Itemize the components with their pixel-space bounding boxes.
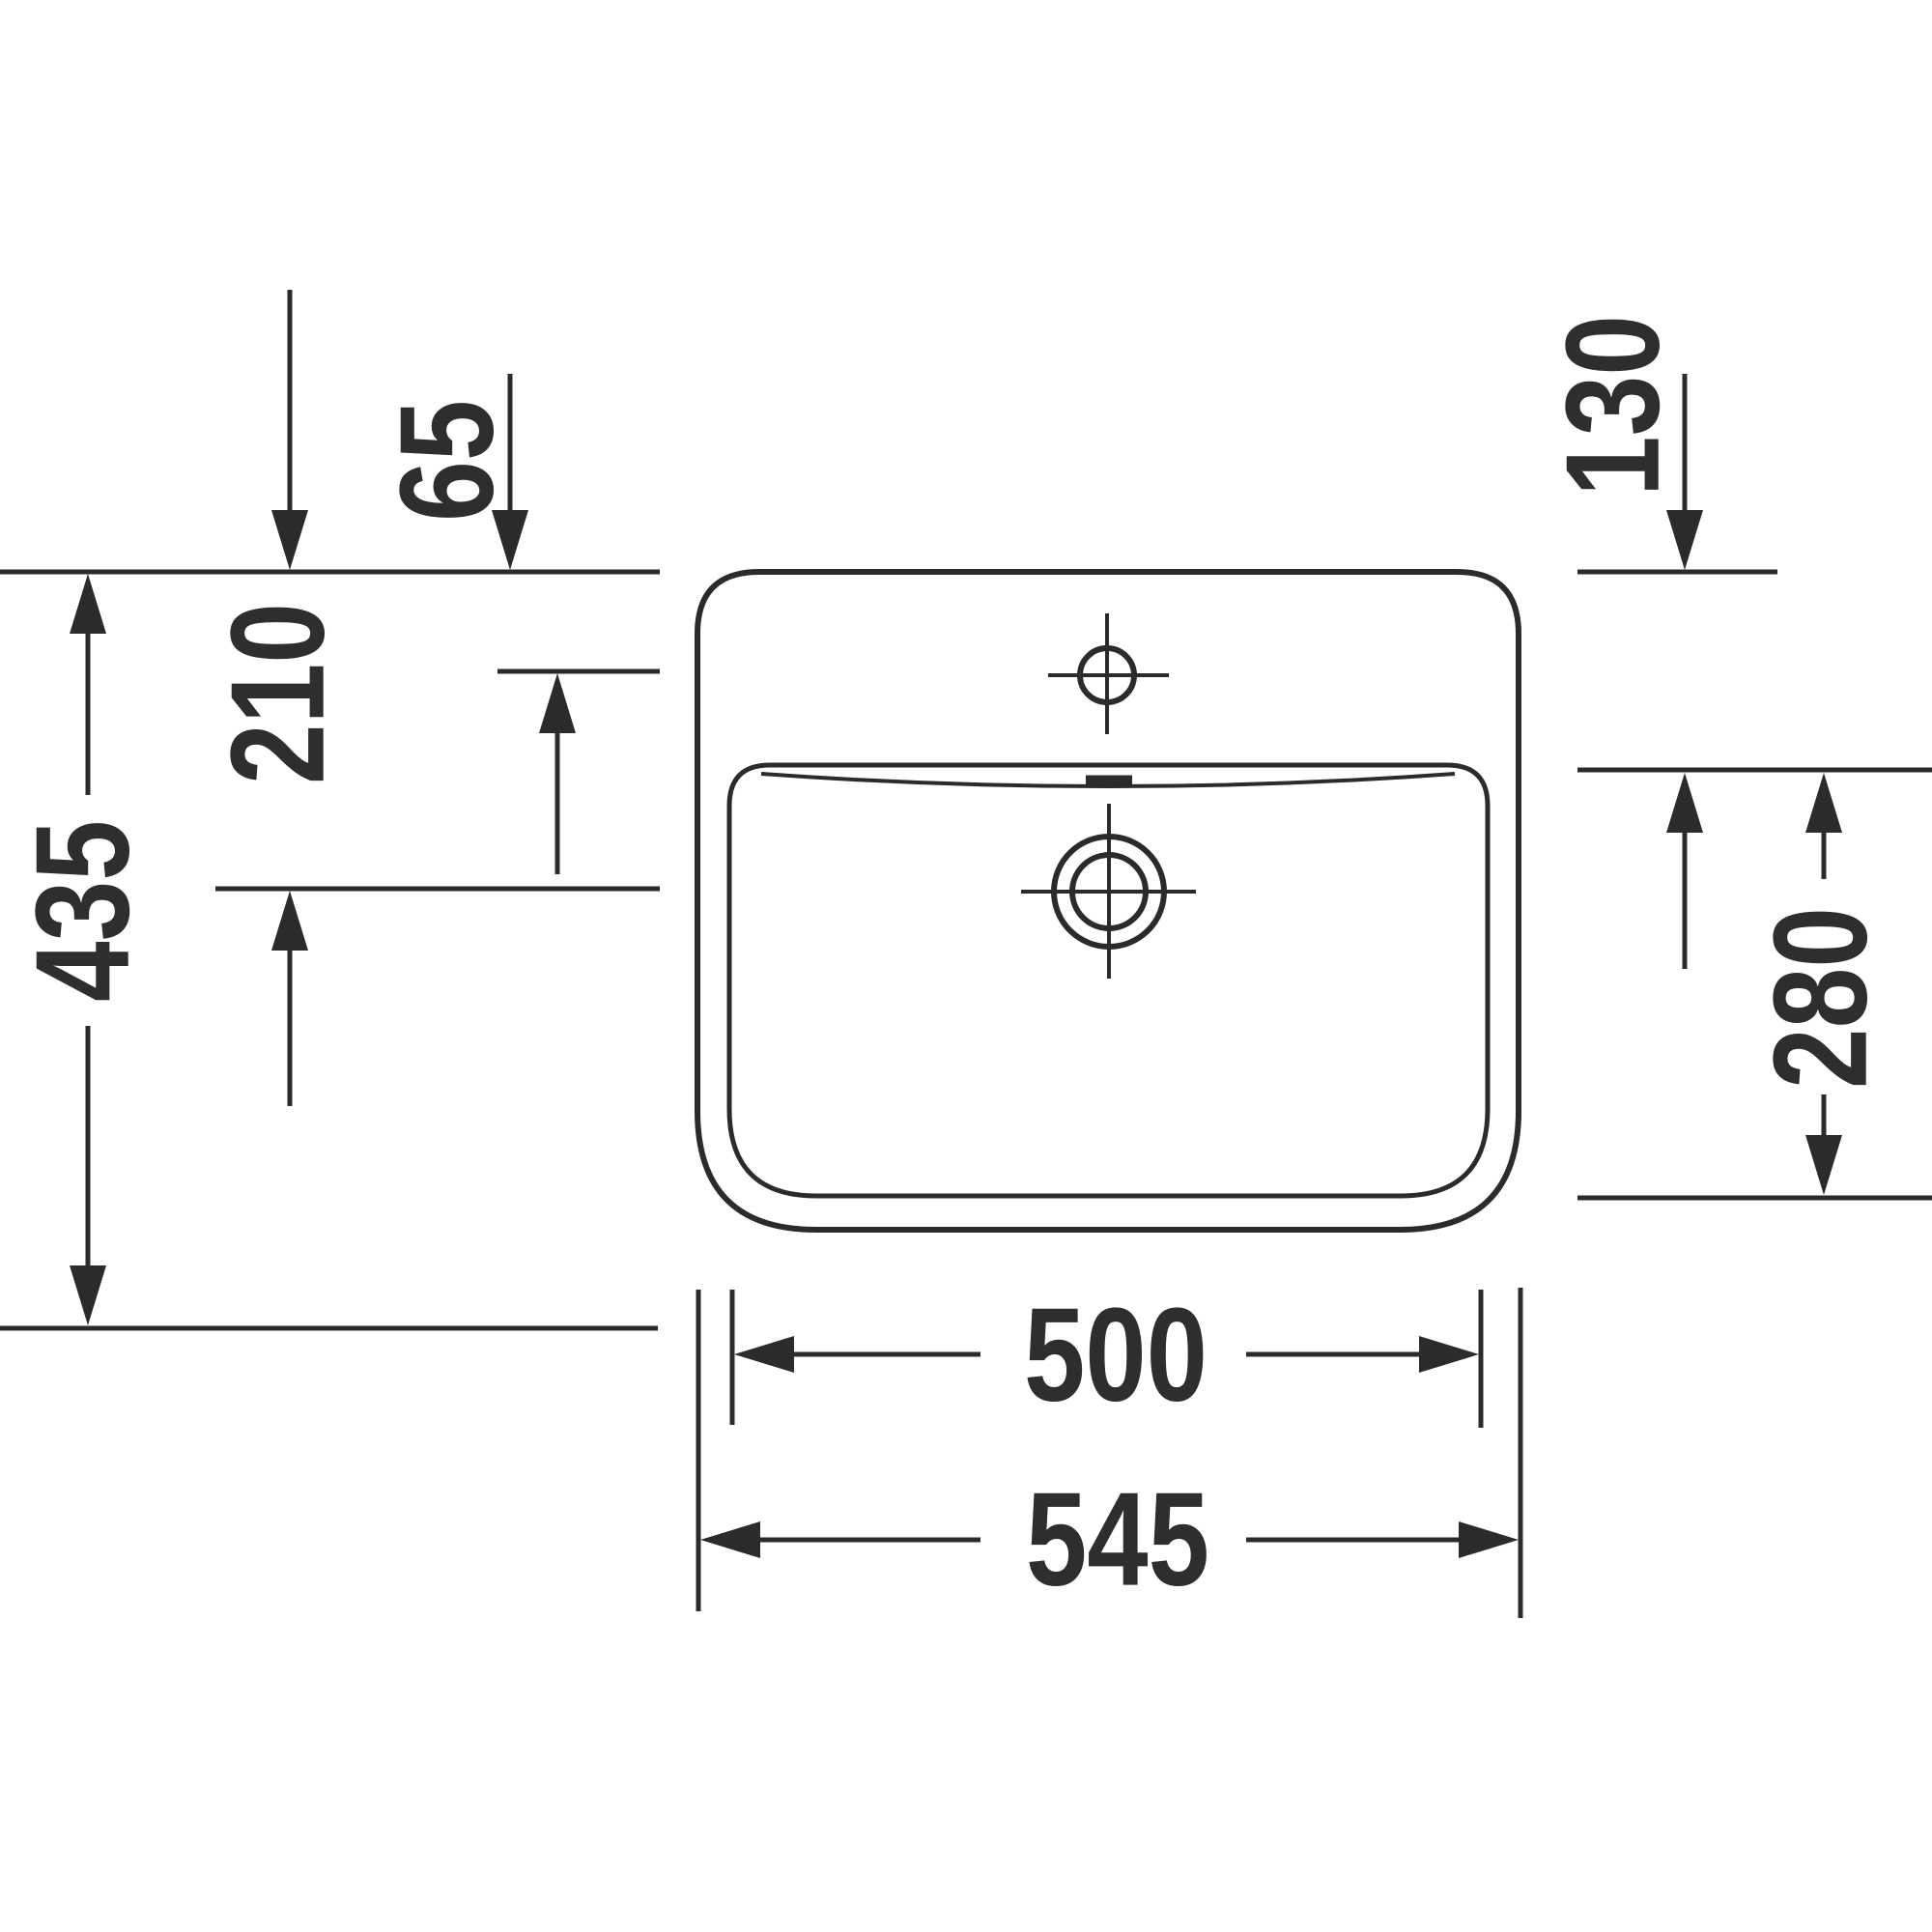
- dimension-435: 435: [9, 574, 157, 1325]
- dim280-label: 280: [1747, 907, 1895, 1089]
- dim500-right-arrowhead: [1419, 1336, 1479, 1373]
- dim545-right-arrowhead: [1459, 1521, 1519, 1558]
- drain: [1021, 804, 1196, 979]
- dim435-label: 435: [9, 820, 157, 1002]
- dim280-down-arrowhead: [1805, 1135, 1842, 1195]
- dim210-label: 210: [204, 603, 353, 784]
- drawing-canvas: 65 210 435 130: [0, 0, 1932, 1932]
- dim130-up-arrowhead: [1666, 773, 1703, 833]
- dim210-down-arrowhead: [271, 510, 308, 570]
- dim130-label: 130: [1539, 315, 1688, 497]
- dim545-label: 545: [1026, 1465, 1209, 1614]
- dim435-up-arrowhead: [70, 574, 106, 634]
- dim545-left-arrowhead: [700, 1521, 760, 1558]
- dimension-280: 280: [1747, 773, 1895, 1195]
- dim500-left-arrowhead: [734, 1336, 794, 1373]
- dim210-up-arrowhead: [271, 891, 308, 951]
- dim280-up-arrowhead: [1805, 773, 1842, 833]
- dim65-up-arrowhead: [539, 673, 576, 733]
- dim435-down-arrowhead: [70, 1265, 106, 1325]
- faucet-hole: [1048, 613, 1169, 734]
- dimension-65: 65: [373, 374, 576, 874]
- dim130-down-arrowhead: [1666, 510, 1703, 570]
- dimension-210: 210: [204, 290, 353, 1106]
- dim65-label: 65: [373, 400, 522, 522]
- dimension-130: 130: [1539, 315, 1703, 969]
- dim500-label: 500: [1024, 1281, 1207, 1430]
- washbasin-technical-diagram: 65 210 435 130: [0, 0, 1932, 1932]
- dimension-500: 500: [732, 1281, 1481, 1430]
